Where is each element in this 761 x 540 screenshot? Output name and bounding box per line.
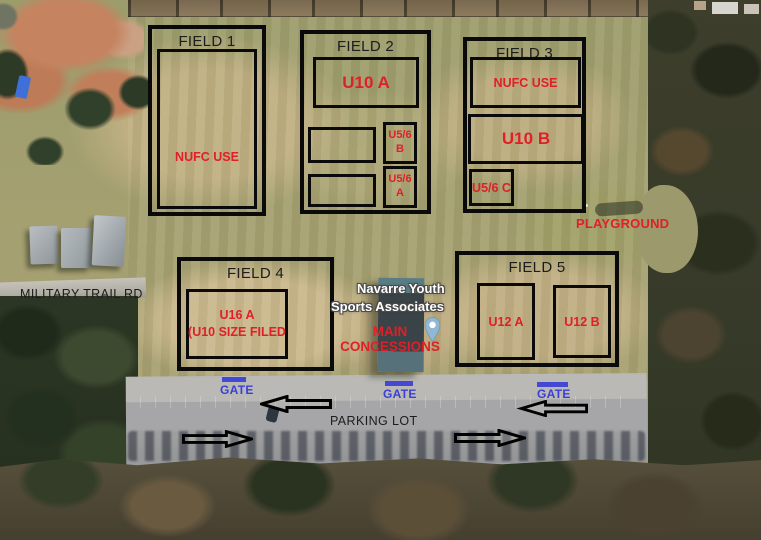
satellite-map[interactable]: FIELD 1 NUFC USE FIELD 2 U10 A U5/6 B U5… (0, 0, 761, 540)
field3-nufc-label: NUFC USE (494, 76, 558, 90)
field5-u12b-box: U12 B (553, 285, 611, 358)
playground-label: PLAYGROUND (576, 216, 669, 231)
field2-box-left-bottom (308, 174, 376, 207)
field1-nufc-box: NUFC USE (157, 49, 257, 209)
arrow-right-icon (182, 430, 253, 448)
field3-u56c-box: U5/6 C (469, 169, 514, 206)
gate-label-2: GATE (383, 387, 417, 401)
concessions-line1: MAIN (373, 324, 408, 339)
field1-title: FIELD 1 (152, 33, 262, 50)
field3-u56c-label: U5/6 C (472, 181, 511, 195)
field2-u56b-label: U5/6 B (386, 129, 414, 157)
arrow-left-icon (260, 395, 332, 413)
rooftop (694, 1, 706, 10)
map-pin-icon[interactable] (424, 316, 441, 343)
treeline-bottom (0, 455, 761, 540)
field1-nufc-label: NUFC USE (175, 95, 239, 164)
rooftop (744, 4, 759, 14)
field2-u10a-label: U10 A (342, 73, 390, 93)
field4-u16a-label: U16 A (220, 307, 255, 324)
field4-u16a-note: (U10 SIZE FILED (188, 324, 286, 341)
field3-u10b-label: U10 B (502, 129, 550, 149)
field2-u56b-box: U5/6 B (383, 122, 417, 164)
arrow-right-icon (454, 429, 526, 447)
field3-u10b-box: U10 B (468, 114, 584, 164)
house-roof (29, 226, 58, 265)
venue-label-line2[interactable]: Sports Associates (331, 299, 444, 314)
field3-nufc-box: NUFC USE (470, 57, 581, 108)
field2-box-left-top (308, 127, 376, 163)
field2-u10a-box: U10 A (313, 57, 419, 108)
gate-label-3: GATE (537, 387, 571, 401)
field2-title: FIELD 2 (304, 38, 427, 55)
top-buildings-row (128, 0, 648, 17)
field5-u12b-label: U12 B (564, 315, 599, 329)
house-roof (61, 228, 91, 268)
road-label: MILITARY TRAIL RD (20, 287, 143, 301)
field4-u16a-box: U16 A (U10 SIZE FILED (186, 289, 288, 359)
parking-lot-label: PARKING LOT (330, 414, 418, 428)
gate-marker-bar (385, 381, 413, 386)
house-roof (92, 215, 127, 267)
venue-label-line1[interactable]: Navarre Youth (357, 281, 445, 296)
field5-u12a-box: U12 A (477, 283, 535, 360)
field2-u56a-box: U5/6 A (383, 166, 417, 208)
field2-u56a-label: U5/6 A (386, 173, 414, 201)
field5-u12a-label: U12 A (489, 315, 524, 329)
gate-marker-bar (222, 377, 246, 382)
gate-label-1: GATE (220, 383, 254, 397)
field4-title: FIELD 4 (181, 265, 330, 282)
arrow-left-icon (514, 400, 594, 417)
rooftop (712, 2, 738, 14)
field5-title: FIELD 5 (459, 259, 615, 276)
